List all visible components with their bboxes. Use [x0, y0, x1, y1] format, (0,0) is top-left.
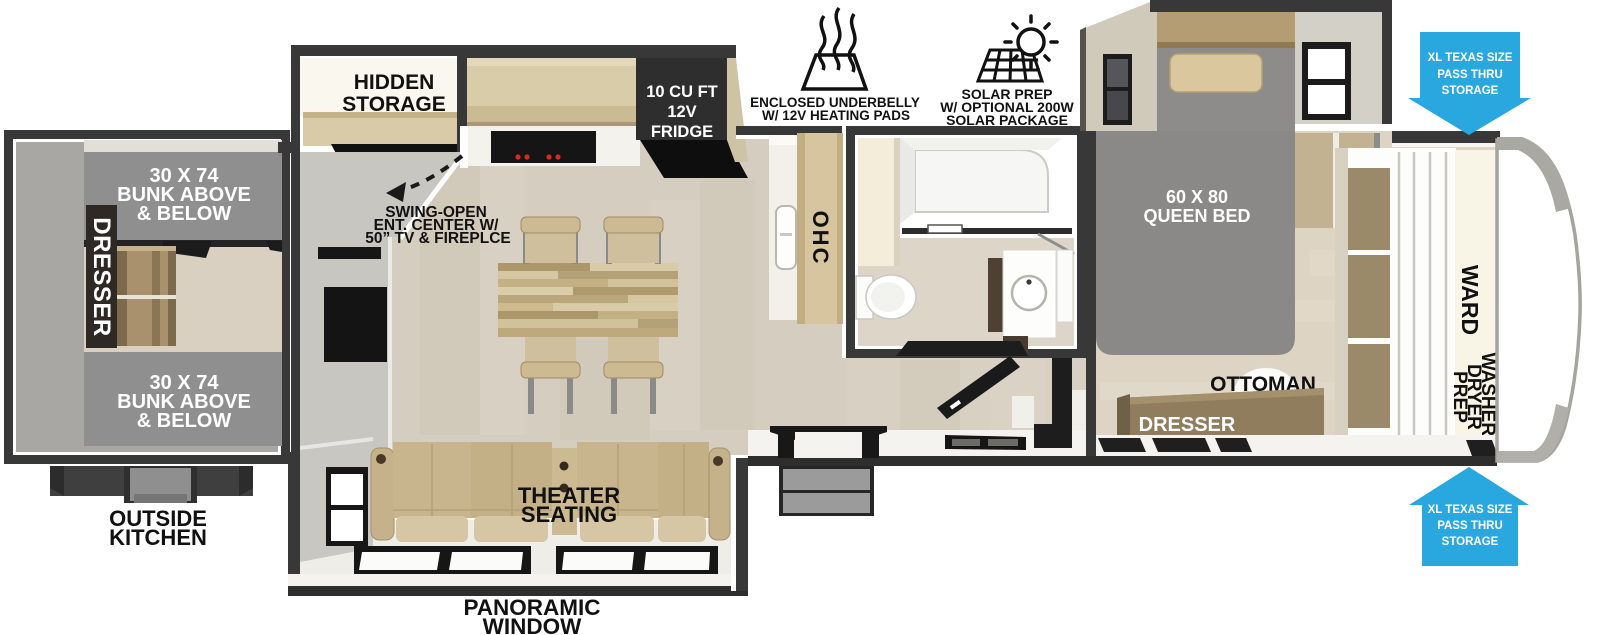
svg-text:PASS THRU: PASS THRU — [1437, 520, 1503, 532]
svg-text:WARD: WARD — [1457, 265, 1483, 335]
svg-text:STORAGE: STORAGE — [1442, 536, 1499, 548]
svg-text:DRESSER: DRESSER — [88, 217, 115, 337]
svg-text:KITCHEN: KITCHEN — [109, 525, 207, 550]
svg-text:DRESSER: DRESSER — [1139, 414, 1236, 436]
svg-text:12V: 12V — [667, 103, 696, 121]
svg-text:WINDOW: WINDOW — [483, 614, 582, 635]
svg-text:& BELOW: & BELOW — [137, 203, 232, 225]
svg-text:W/ 12V HEATING PADS: W/ 12V HEATING PADS — [762, 108, 910, 123]
svg-text:60 X 80: 60 X 80 — [1166, 187, 1228, 207]
svg-text:50” TV & FIREPLCE: 50” TV & FIREPLCE — [365, 230, 511, 247]
svg-text:10 CU FT: 10 CU FT — [646, 83, 718, 101]
svg-text:STORAGE: STORAGE — [342, 93, 445, 116]
svg-text:HIDDEN: HIDDEN — [354, 71, 435, 94]
svg-text:OHC: OHC — [808, 211, 833, 266]
svg-text:SOLAR PACKAGE: SOLAR PACKAGE — [946, 112, 1068, 128]
svg-text:QUEEN BED: QUEEN BED — [1143, 206, 1250, 226]
svg-text:WASHER/: WASHER/ — [1477, 353, 1498, 442]
svg-text:FRIDGE: FRIDGE — [651, 123, 713, 141]
svg-text:PASS THRU: PASS THRU — [1437, 69, 1503, 81]
svg-text:SEATING: SEATING — [521, 502, 617, 527]
svg-text:STORAGE: STORAGE — [1442, 85, 1499, 97]
svg-text:XL TEXAS SIZE: XL TEXAS SIZE — [1428, 504, 1513, 516]
svg-text:XL TEXAS SIZE: XL TEXAS SIZE — [1428, 52, 1513, 64]
svg-text:& BELOW: & BELOW — [137, 410, 232, 432]
